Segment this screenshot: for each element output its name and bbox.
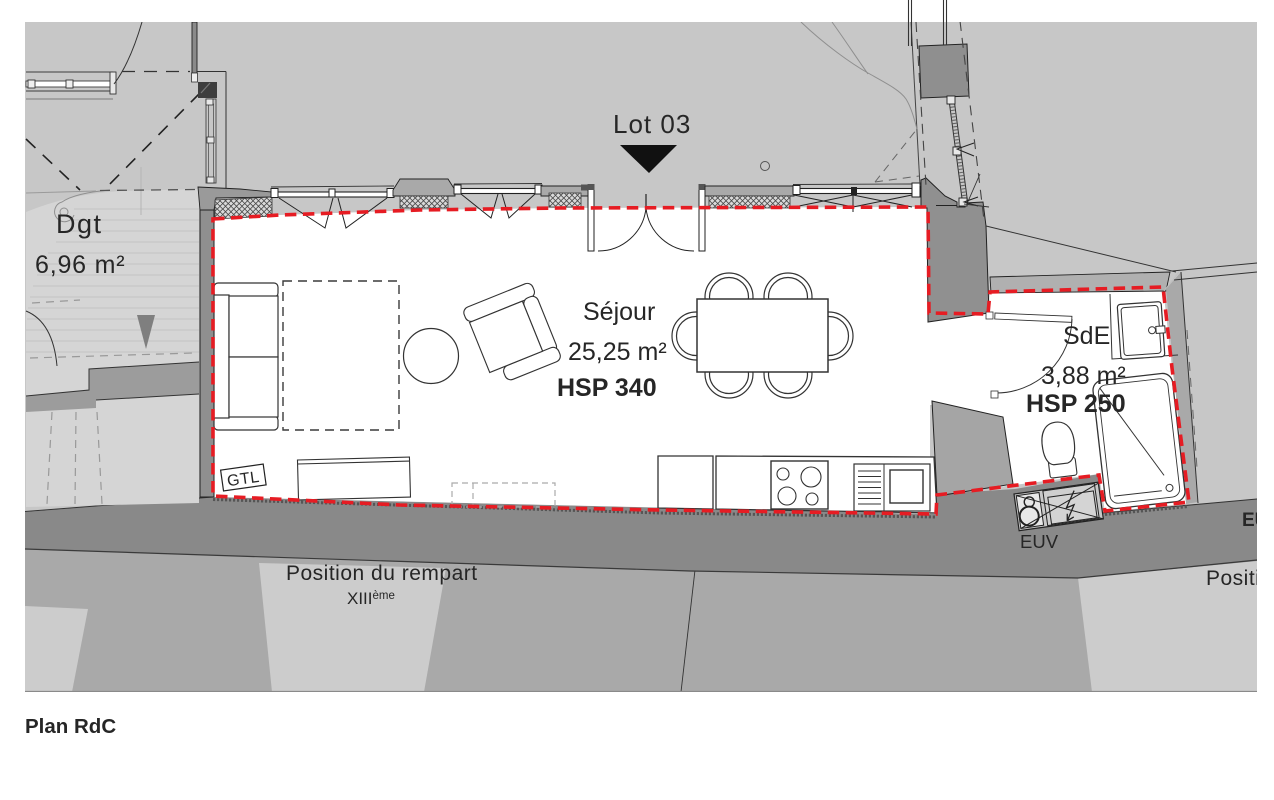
svg-text:Séjour: Séjour [583, 298, 655, 326]
svg-text:25,25 m²: 25,25 m² [568, 338, 667, 366]
svg-text:SdE: SdE [1063, 322, 1110, 350]
svg-text:EUV: EUV [1020, 531, 1059, 552]
svg-text:3,88 m²: 3,88 m² [1041, 362, 1126, 390]
svg-text:HSP 250: HSP 250 [1026, 390, 1126, 418]
svg-text:Lot 03: Lot 03 [613, 109, 691, 139]
svg-text:Plan RdC: Plan RdC [25, 715, 116, 738]
svg-text:HSP 340: HSP 340 [557, 374, 657, 402]
svg-text:Dgt: Dgt [56, 209, 103, 239]
svg-text:6,96 m²: 6,96 m² [35, 251, 125, 279]
svg-text:Position du rempart: Position du rempart [286, 562, 478, 585]
